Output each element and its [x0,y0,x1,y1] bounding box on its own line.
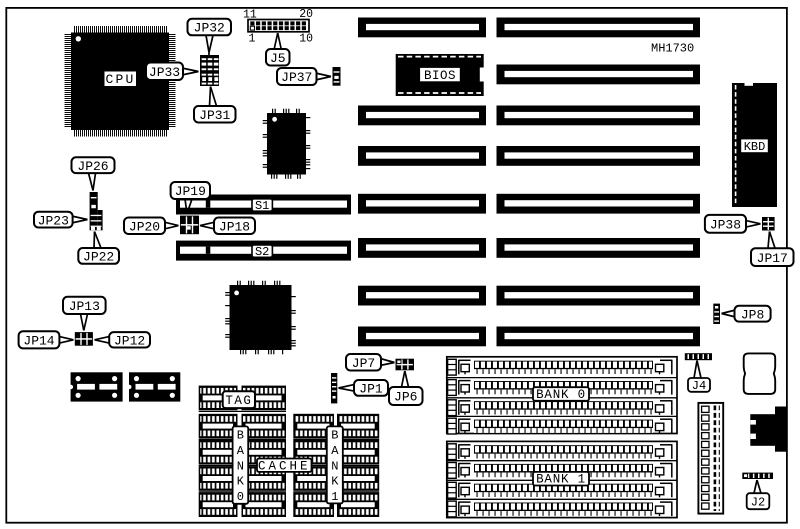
svg-text:TAG: TAG [225,394,252,408]
svg-text:JP26: JP26 [77,159,108,174]
svg-text:JP13: JP13 [69,299,100,314]
svg-text:JP6: JP6 [394,390,417,405]
svg-text:B: B [237,429,244,443]
svg-text:JP33: JP33 [149,65,180,80]
svg-text:JP14: JP14 [23,333,54,348]
svg-text:20: 20 [299,8,313,21]
svg-text:JP22: JP22 [83,250,114,265]
svg-text:B: B [331,429,338,443]
svg-text:1: 1 [249,33,256,46]
svg-text:0: 0 [237,490,244,504]
svg-text:JP17: JP17 [757,251,788,266]
svg-text:BANK 0: BANK 0 [536,388,586,402]
svg-text:S1: S1 [255,199,269,213]
svg-text:KBD: KBD [744,140,766,154]
svg-text:K: K [331,475,339,489]
svg-text:J4: J4 [692,379,706,393]
svg-text:K: K [237,475,245,489]
svg-text:JP7: JP7 [352,356,375,371]
svg-text:JP37: JP37 [281,70,312,85]
svg-text:JP23: JP23 [38,213,69,228]
svg-text:JP1: JP1 [359,382,383,397]
svg-text:CACHE: CACHE [258,460,311,474]
svg-text:JP12: JP12 [114,333,145,348]
svg-text:MH1730: MH1730 [651,42,694,56]
svg-text:A: A [331,444,339,458]
svg-text:10: 10 [299,33,313,46]
svg-text:J2: J2 [751,496,765,510]
svg-text:JP38: JP38 [710,217,741,232]
svg-text:JP31: JP31 [199,108,230,123]
svg-text:CPU: CPU [105,72,135,87]
svg-text:S2: S2 [255,245,269,259]
svg-text:JP19: JP19 [175,184,206,199]
svg-text:BIOS: BIOS [424,69,456,83]
svg-text:N: N [237,459,244,473]
svg-text:JP18: JP18 [219,219,250,234]
svg-text:JP20: JP20 [129,219,160,234]
svg-text:JP32: JP32 [194,21,225,36]
svg-text:11: 11 [243,9,257,22]
svg-text:N: N [331,459,338,473]
svg-text:JP8: JP8 [741,307,764,322]
svg-text:1: 1 [331,490,338,504]
svg-text:J5: J5 [270,51,286,66]
svg-text:A: A [237,444,245,458]
svg-text:BANK 1: BANK 1 [536,473,586,487]
